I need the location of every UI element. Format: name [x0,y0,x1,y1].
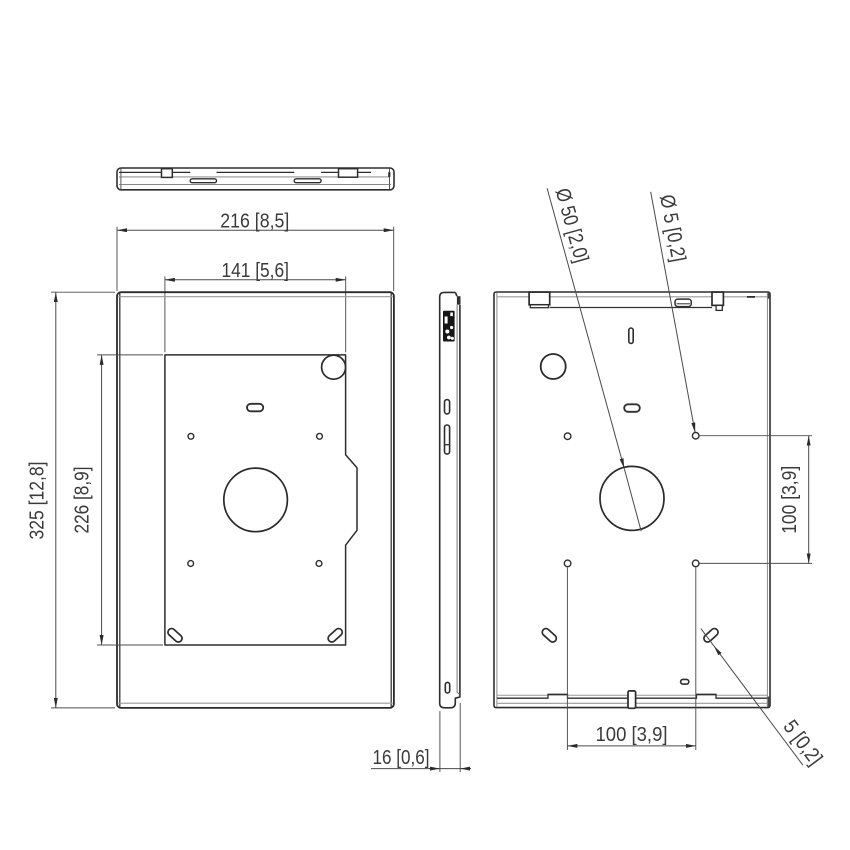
svg-text:100 [3,9]: 100 [3,9] [778,466,801,534]
svg-text:216 [8,5]: 216 [8,5] [220,210,289,233]
svg-text:226 [8,9]: 226 [8,9] [71,467,94,534]
svg-text:141 [5,6]: 141 [5,6] [221,259,289,282]
svg-text:100 [3,9]: 100 [3,9] [596,723,668,746]
svg-text:16 [0,6]: 16 [0,6] [373,746,430,769]
svg-text:325 [12,8]: 325 [12,8] [26,462,49,540]
